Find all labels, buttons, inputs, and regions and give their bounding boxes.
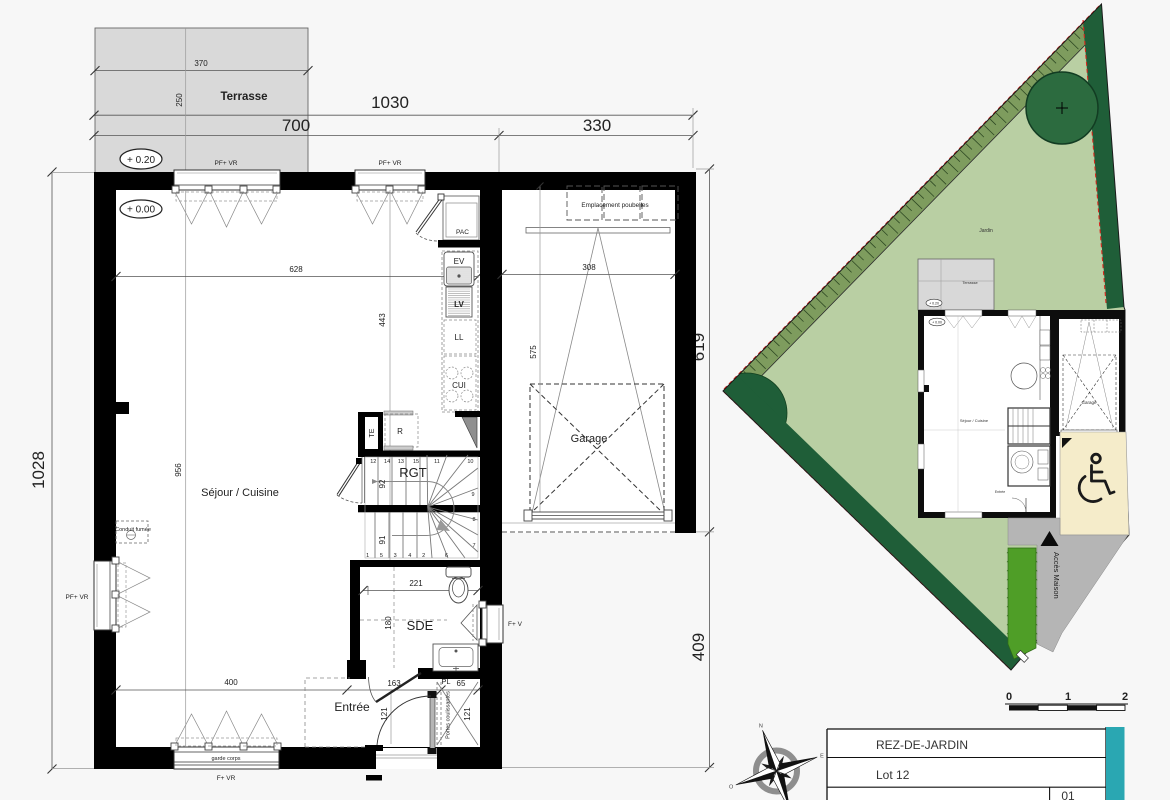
svg-text:1030: 1030 xyxy=(371,93,409,112)
svg-text:F+ VR: F+ VR xyxy=(217,775,236,782)
svg-text:250: 250 xyxy=(175,93,184,107)
svg-text:8: 8 xyxy=(472,517,475,523)
svg-text:EV: EV xyxy=(454,257,465,266)
svg-text:PL: PL xyxy=(441,677,450,686)
svg-text:Entrée: Entrée xyxy=(334,700,370,714)
svg-text:Conduit fumée: Conduit fumée xyxy=(115,527,151,533)
svg-text:Entrée: Entrée xyxy=(995,490,1005,494)
svg-text:400: 400 xyxy=(224,678,238,687)
svg-text:Séjour / Cuisine: Séjour / Cuisine xyxy=(201,487,279,499)
svg-text:R: R xyxy=(397,427,403,436)
svg-text:+ 0.00: + 0.00 xyxy=(932,321,942,325)
svg-text:11: 11 xyxy=(434,459,440,465)
svg-text:91: 91 xyxy=(378,535,387,544)
svg-text:121: 121 xyxy=(380,707,389,721)
svg-text:92: 92 xyxy=(378,479,387,488)
svg-text:443: 443 xyxy=(378,313,387,327)
svg-text:+ 0.20: + 0.20 xyxy=(929,302,939,306)
svg-text:180: 180 xyxy=(384,616,393,630)
svg-text:PAC: PAC xyxy=(456,229,469,236)
svg-text:3: 3 xyxy=(394,553,397,559)
svg-text:409: 409 xyxy=(689,633,708,661)
svg-text:1: 1 xyxy=(1065,691,1071,703)
svg-text:RGT: RGT xyxy=(399,465,427,480)
svg-text:65: 65 xyxy=(457,679,466,688)
svg-text:9: 9 xyxy=(471,492,474,498)
svg-text:4: 4 xyxy=(408,553,411,559)
svg-text:330: 330 xyxy=(583,116,611,135)
svg-text:F+ V: F+ V xyxy=(508,621,523,628)
svg-text:956: 956 xyxy=(174,463,183,477)
svg-text:5: 5 xyxy=(380,553,383,559)
svg-text:Emplacement poubelles: Emplacement poubelles xyxy=(581,202,648,209)
svg-text:14: 14 xyxy=(384,459,390,465)
svg-text:LV: LV xyxy=(454,300,464,309)
svg-text:N: N xyxy=(759,724,763,730)
svg-text:12: 12 xyxy=(370,459,376,465)
svg-text:0: 0 xyxy=(1006,691,1012,703)
svg-text:Séjour / Cuisine: Séjour / Cuisine xyxy=(960,418,989,423)
svg-text:Terrasse: Terrasse xyxy=(962,280,978,285)
svg-text:CUI: CUI xyxy=(452,381,466,390)
svg-text:Portes coulissantes: Portes coulissantes xyxy=(446,691,452,739)
svg-text:221: 221 xyxy=(409,579,423,588)
svg-text:10: 10 xyxy=(467,459,473,465)
svg-text:308: 308 xyxy=(582,263,596,272)
svg-text:O: O xyxy=(729,785,734,791)
svg-text:6: 6 xyxy=(445,553,448,559)
svg-text:121: 121 xyxy=(463,707,472,721)
svg-text:E: E xyxy=(820,753,824,759)
svg-text:PF+ VR: PF+ VR xyxy=(215,160,238,167)
svg-text:LL: LL xyxy=(455,333,464,342)
svg-text:SDE: SDE xyxy=(407,618,434,633)
svg-text:Garage: Garage xyxy=(1081,400,1097,405)
svg-text:01: 01 xyxy=(1061,789,1075,800)
svg-text:Garage: Garage xyxy=(571,433,608,445)
svg-text:700: 700 xyxy=(282,116,310,135)
svg-text:+ 0.00: + 0.00 xyxy=(127,205,156,216)
svg-text:TE: TE xyxy=(369,428,376,437)
svg-text:Jardin: Jardin xyxy=(979,228,993,234)
svg-text:2: 2 xyxy=(1122,691,1128,703)
svg-text:Accès Maison: Accès Maison xyxy=(1052,552,1061,599)
svg-text:7: 7 xyxy=(472,543,475,549)
svg-text:1028: 1028 xyxy=(29,451,48,489)
svg-text:2: 2 xyxy=(422,553,425,559)
svg-text:575: 575 xyxy=(529,345,538,359)
svg-text:+ 0.20: + 0.20 xyxy=(127,155,156,166)
svg-text:628: 628 xyxy=(289,265,303,274)
svg-text:PF+ VR: PF+ VR xyxy=(66,594,89,601)
svg-text:REZ-DE-JARDIN: REZ-DE-JARDIN xyxy=(876,738,968,752)
svg-text:PF+ VR: PF+ VR xyxy=(379,160,402,167)
svg-text:Terrasse: Terrasse xyxy=(220,91,267,103)
svg-text:Lot 12: Lot 12 xyxy=(876,768,910,782)
svg-text:garde corps: garde corps xyxy=(211,756,240,762)
svg-text:1: 1 xyxy=(366,553,369,559)
svg-text:370: 370 xyxy=(194,59,208,68)
